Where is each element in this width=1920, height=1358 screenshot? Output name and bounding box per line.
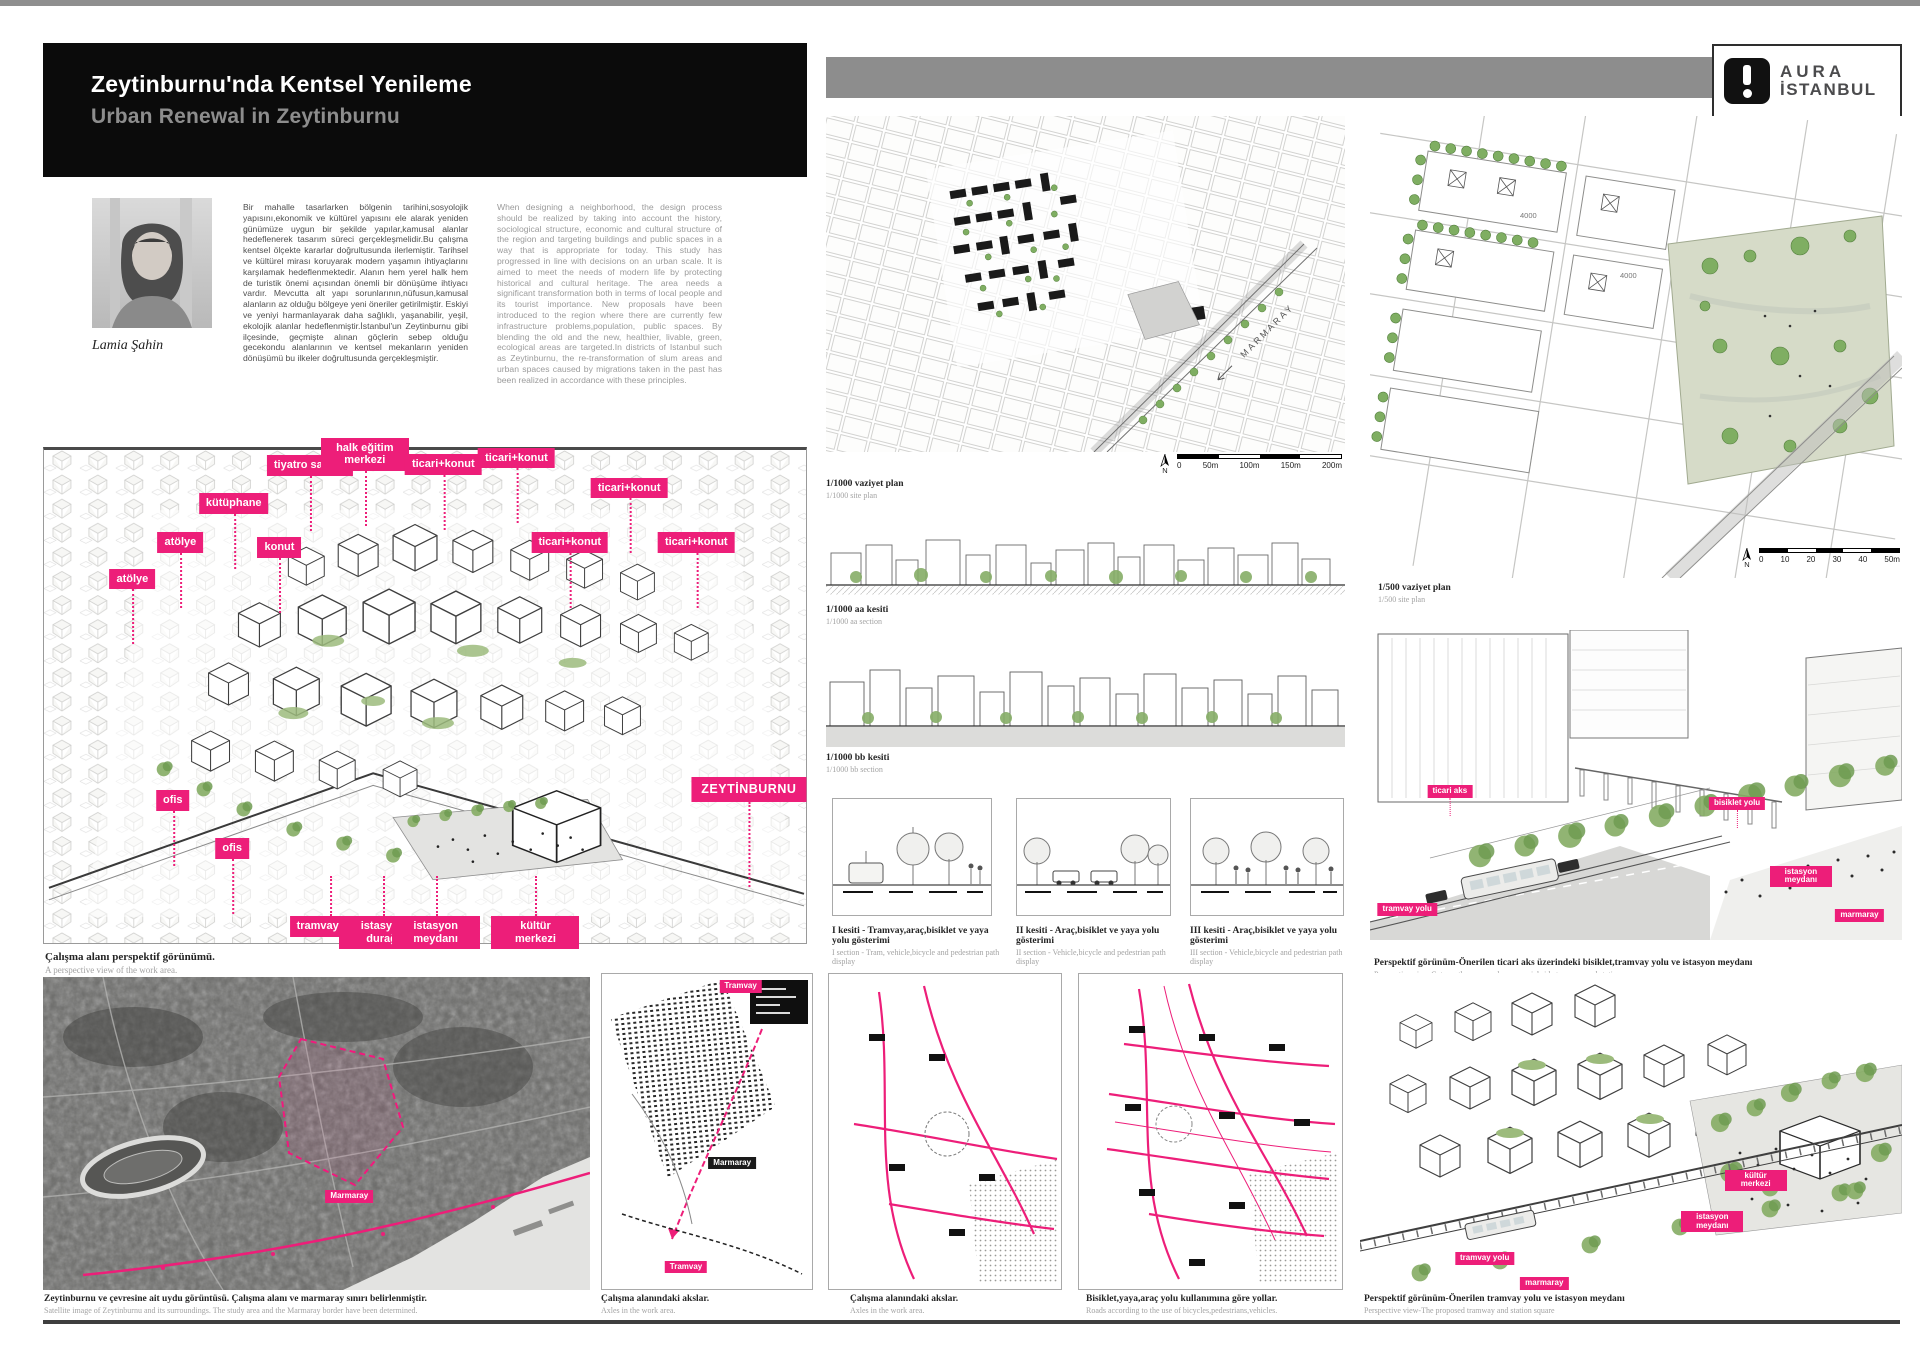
scale-tick: 30 [1832, 555, 1841, 564]
caption-axes-diagram: Çalışma alanındaki akslar. Axles in the … [850, 1294, 958, 1315]
caption-cross-section-1: I kesiti - Tramvay,araç,bisiklet ve yaya… [832, 926, 1002, 966]
page-top-edge [0, 0, 1920, 6]
title-bar: Zeytinburnu'nda Kentsel Yenileme Urban R… [43, 43, 807, 177]
section-aa-panel [826, 515, 1345, 603]
axes-diagram-panel [828, 973, 1062, 1290]
caption-axon: Çalışma alanı perspektif görünümü. A per… [45, 951, 215, 975]
cross-section-1-drawing [833, 799, 991, 915]
portrait-image [92, 198, 212, 328]
caption-perspective-tram: Perspektif görünüm-Önerilen tramvay yolu… [1364, 1294, 1884, 1315]
author-photo [92, 198, 212, 328]
cross-section-2-drawing [1017, 799, 1170, 915]
caption-section-aa: 1/1000 aa kesiti 1/1000 aa section [826, 605, 888, 626]
caption-plan-1000: 1/1000 vaziyet plan 1/1000 site plan [826, 479, 904, 500]
intro-paragraph-turkish: Bir mahalle tasarlarken bölgenin tarihin… [243, 202, 468, 364]
scale-bar: 01020304050m [1759, 548, 1900, 564]
scale-tick: 10 [1781, 555, 1790, 564]
satellite-image [43, 977, 590, 1290]
axes-map-panel: TramvayMarmarayTramvay [601, 973, 813, 1290]
scale-tick: 150m [1281, 461, 1301, 470]
north-arrow: N [1742, 548, 1752, 569]
scale-tick: 0 [1177, 461, 1181, 470]
scale-bar-plan-1000: N 050m100m150m200m [1160, 454, 1342, 475]
perspective-tram-panel: kültür merkeziistasyon meydanıtramvay yo… [1360, 973, 1902, 1290]
caption-plan-500: 1/500 vaziyet plan 1/500 site plan [1378, 583, 1451, 604]
caption-roads-diagram: Bisiklet,yaya,araç yolu kullanımına göre… [1086, 1294, 1277, 1315]
satellite-map-panel: Marmaray [43, 977, 590, 1290]
section-bb-panel [826, 648, 1345, 748]
caption-satellite: Zeytinburnu ve çevresine ait uydu görünt… [44, 1294, 427, 1315]
scale-tick: 0 [1759, 555, 1763, 564]
perspective-axis-drawing [1370, 630, 1902, 940]
lot-number-label: 4000 [1620, 271, 1637, 280]
caption-cross-section-3: III kesiti - Araç,bisiklet ve yaya yolu … [1190, 926, 1355, 966]
caption-axes-map: Çalışma alanındaki akslar. Axles in the … [601, 1294, 709, 1315]
roads-diagram-panel [1078, 973, 1343, 1290]
lot-number-label: 4000 [1520, 211, 1537, 220]
aura-logo-icon [1724, 58, 1770, 104]
scale-tick: 100m [1239, 461, 1259, 470]
aura-istanbul-logo: AURA İSTANBUL [1712, 44, 1902, 118]
perspective-axis-panel: ticari aksbisiklet yoluistasyon meydanıt… [1370, 630, 1902, 940]
scale-bar-plan-500: N 01020304050m [1742, 548, 1900, 569]
axes-map-drawing [602, 974, 812, 1289]
axonometric-drawing [44, 450, 806, 943]
site-plan-1000-panel: MARMARAY [826, 116, 1345, 452]
cross-section-3-drawing [1191, 799, 1343, 915]
aura-logo-text: AURA İSTANBUL [1780, 63, 1877, 99]
site-plan-1000-drawing: MARMARAY [826, 116, 1345, 452]
cross-section-1-panel [832, 798, 992, 916]
intro-paragraph-english: When designing a neighborhood, the desig… [497, 202, 722, 386]
author-name: Lamia Şahin [92, 338, 163, 354]
scale-tick: 20 [1806, 555, 1815, 564]
scale-bar: 050m100m150m200m [1177, 454, 1342, 470]
section-bb-drawing [826, 648, 1345, 748]
section-aa-drawing [826, 515, 1345, 603]
site-plan-500-drawing: 4000 4000 [1370, 116, 1902, 578]
axes-diagram-drawing [829, 974, 1061, 1289]
caption-cross-section-2: II kesiti - Araç,bisiklet ve yaya yolu g… [1016, 926, 1181, 966]
perspective-tram-drawing [1360, 973, 1902, 1290]
north-arrow: N [1160, 454, 1170, 475]
axonometric-masterplan-panel: atölyeatölyekütüphanekonuttiyatro salonu… [43, 447, 807, 944]
board-bottom-rule [43, 1320, 1900, 1324]
scale-tick: 40 [1858, 555, 1867, 564]
caption-section-bb: 1/1000 bb kesiti 1/1000 bb section [826, 753, 889, 774]
cross-section-3-panel [1190, 798, 1344, 916]
roads-diagram-drawing [1079, 974, 1342, 1289]
presentation-board: Zeytinburnu'nda Kentsel Yenileme Urban R… [0, 0, 1920, 1358]
cross-section-2-panel [1016, 798, 1171, 916]
page-title: Zeytinburnu'nda Kentsel Yenileme [91, 71, 472, 98]
scale-tick: 50m [1884, 555, 1900, 564]
page-subtitle: Urban Renewal in Zeytinburnu [91, 105, 400, 129]
scale-tick: 200m [1322, 461, 1342, 470]
scale-tick: 50m [1203, 461, 1219, 470]
site-plan-500-panel: 4000 4000 [1370, 116, 1902, 578]
